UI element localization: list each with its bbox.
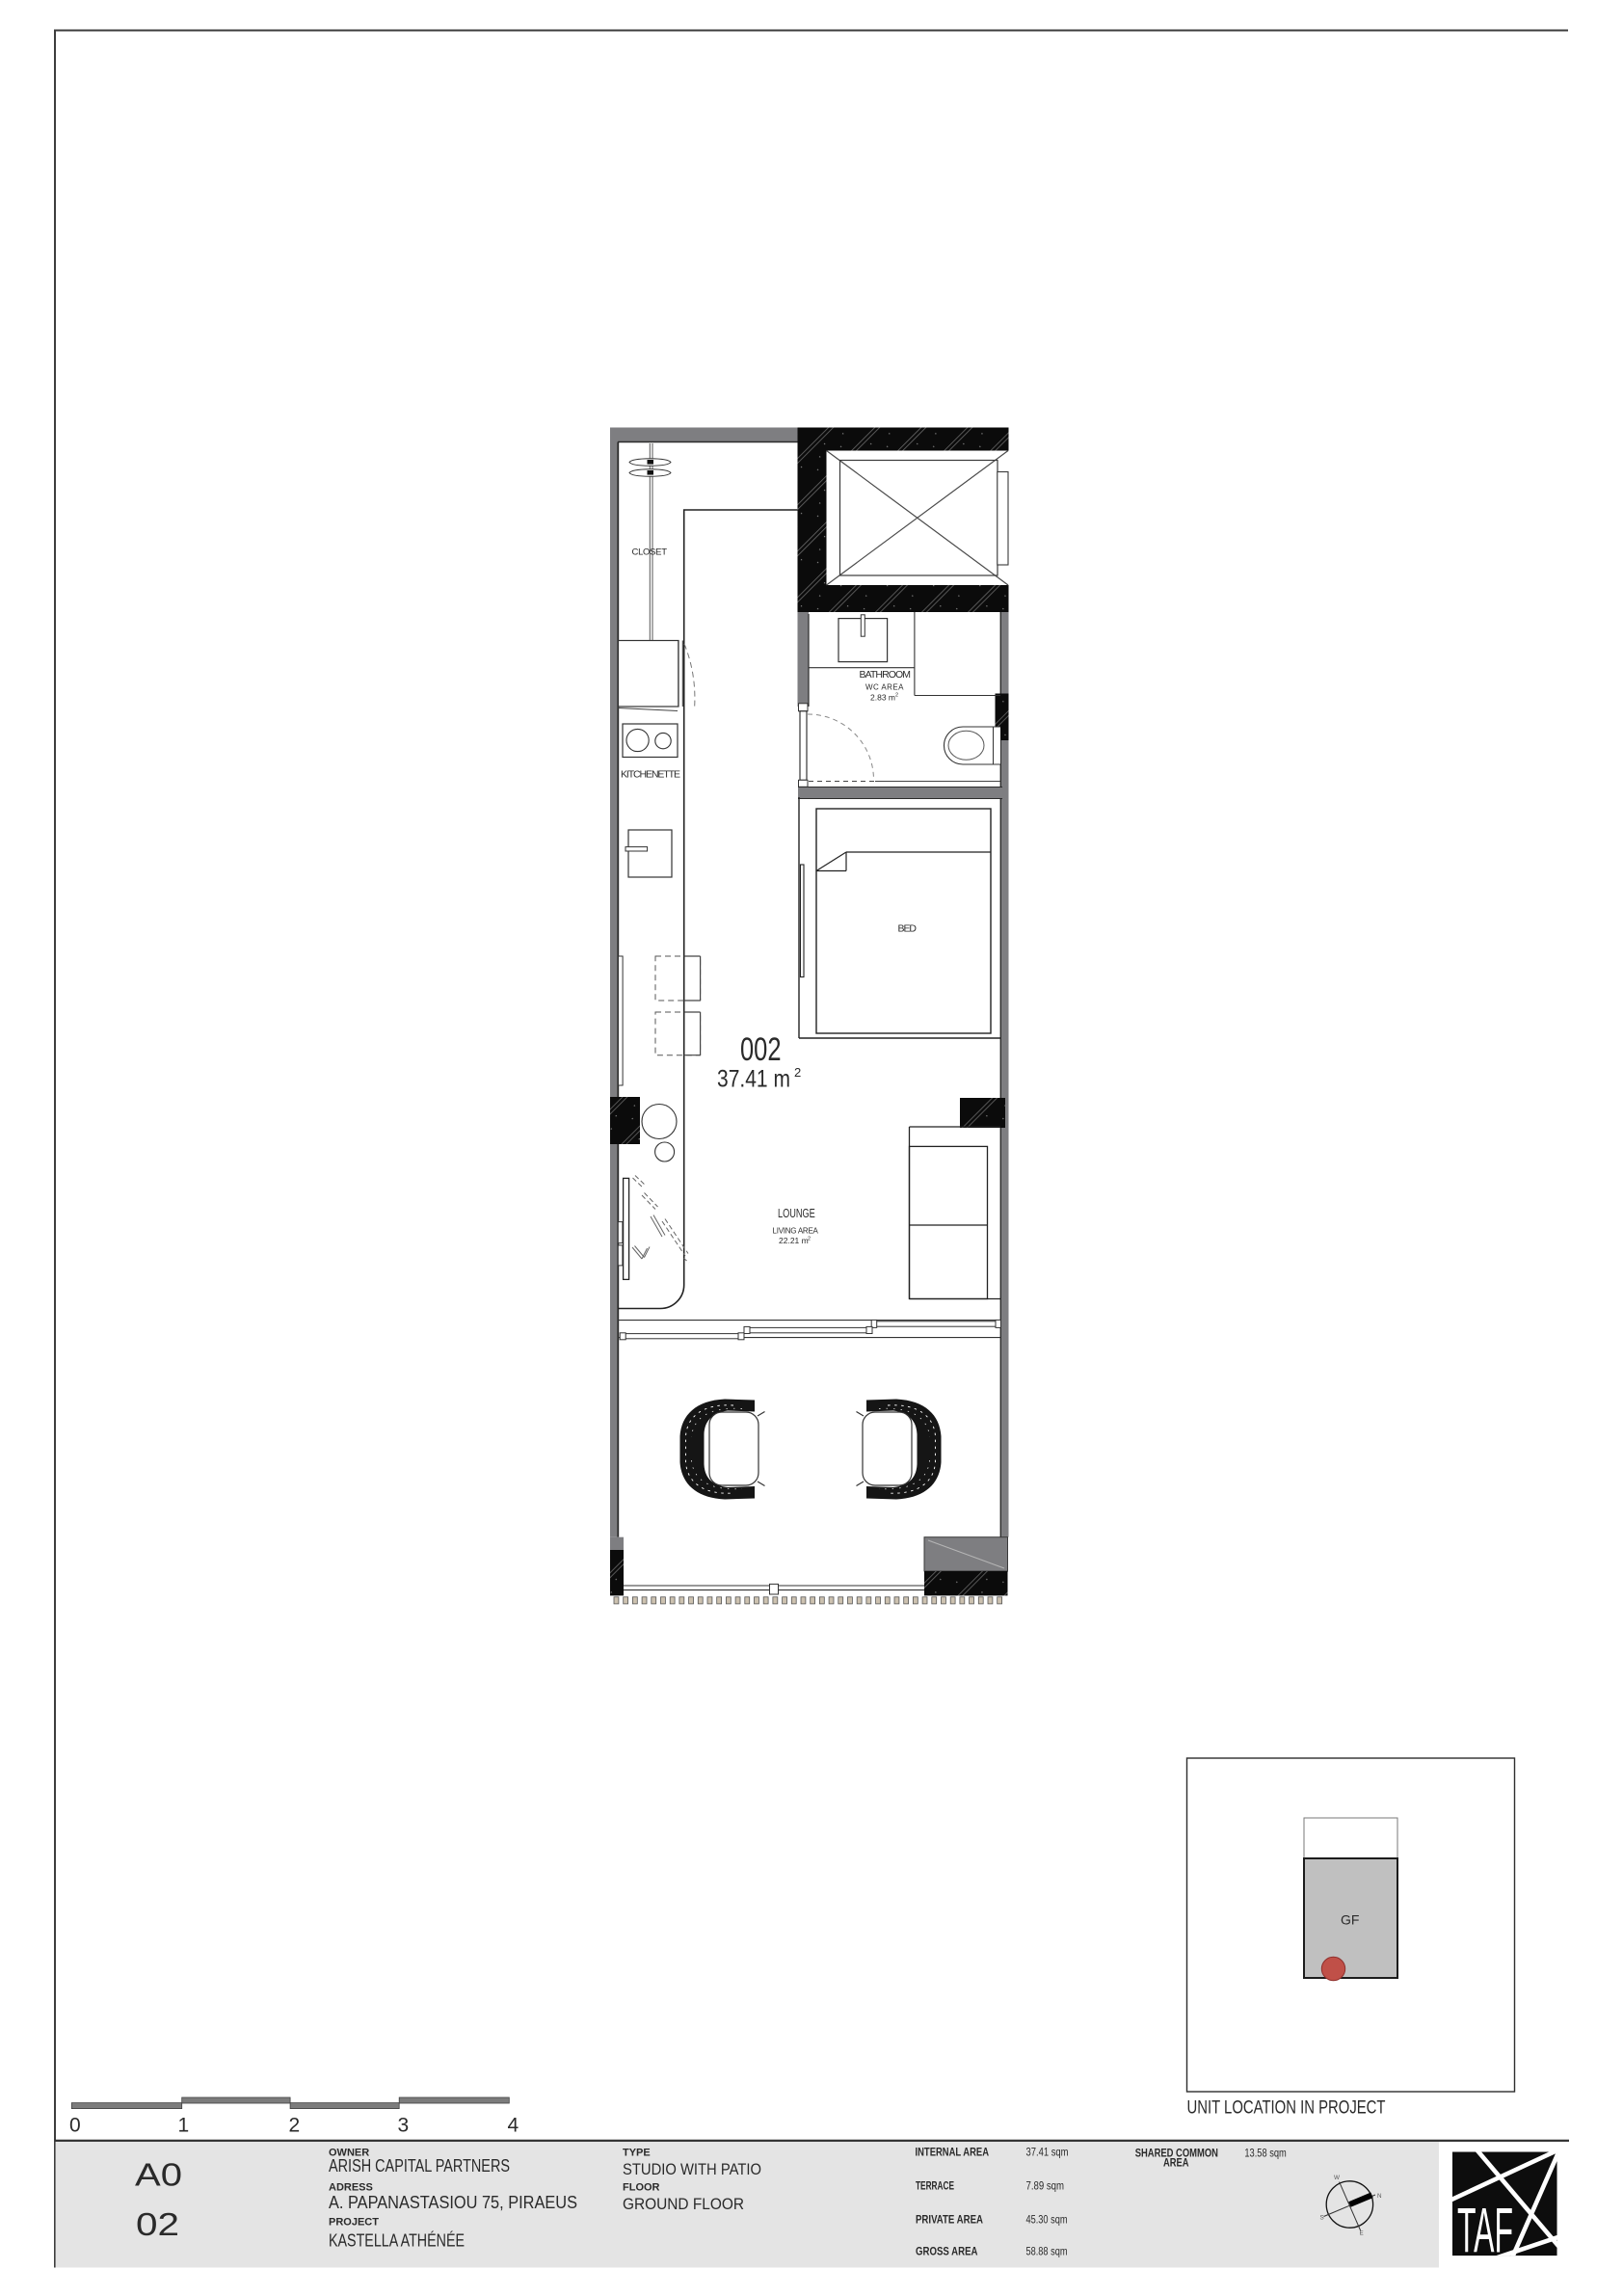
svg-text:1: 1 [178, 2115, 190, 2137]
svg-text:ARISH CAPITAL PARTNERS: ARISH CAPITAL PARTNERS [329, 2156, 510, 2176]
svg-text:2: 2 [808, 1237, 811, 1242]
svg-text:GROSS AREA: GROSS AREA [916, 2247, 978, 2258]
svg-text:N: N [1377, 2193, 1382, 2200]
svg-text:002: 002 [740, 1031, 782, 1068]
svg-text:GF: GF [1341, 1912, 1359, 1928]
svg-text:S: S [1320, 2215, 1324, 2222]
svg-text:TAF: TAF [1457, 2195, 1513, 2266]
svg-text:GROUND FLOOR: GROUND FLOOR [623, 2195, 744, 2213]
svg-text:BED: BED [898, 923, 918, 935]
svg-text:2: 2 [794, 1065, 801, 1080]
svg-text:22.21 m: 22.21 m [779, 1236, 809, 1245]
svg-text:LOUNGE: LOUNGE [778, 1207, 815, 1220]
svg-text:LIVING AREA: LIVING AREA [773, 1226, 819, 1235]
svg-text:0: 0 [69, 2115, 81, 2137]
svg-text:PROJECT: PROJECT [329, 2217, 379, 2229]
svg-text:CLOSET: CLOSET [632, 547, 668, 558]
svg-text:BATHROOM: BATHROOM [860, 669, 912, 681]
svg-text:2: 2 [895, 693, 898, 699]
svg-text:58.88 sqm: 58.88 sqm [1026, 2247, 1068, 2258]
svg-text:KASTELLA ATHÉNÉE: KASTELLA ATHÉNÉE [329, 2231, 465, 2251]
svg-text:3: 3 [398, 2115, 410, 2137]
svg-text:UNIT LOCATION IN PROJECT: UNIT LOCATION IN PROJECT [1187, 2098, 1386, 2119]
svg-text:E: E [1360, 2230, 1364, 2237]
svg-text:KITCHENETTE: KITCHENETTE [621, 769, 680, 781]
svg-text:WC AREA: WC AREA [865, 683, 904, 692]
svg-text:FLOOR: FLOOR [623, 2182, 660, 2194]
svg-text:45.30 sqm: 45.30 sqm [1026, 2215, 1068, 2227]
svg-text:ADRESS: ADRESS [329, 2182, 373, 2194]
svg-text:AREA: AREA [1163, 2157, 1189, 2169]
svg-text:INTERNAL AREA: INTERNAL AREA [916, 2148, 990, 2159]
svg-text:STUDIO WITH PATIO: STUDIO WITH PATIO [623, 2160, 761, 2178]
svg-text:A0: A0 [135, 2157, 182, 2193]
svg-text:37.41 sqm: 37.41 sqm [1026, 2148, 1069, 2159]
svg-text:W: W [1334, 2175, 1340, 2181]
svg-text:4: 4 [508, 2115, 519, 2137]
svg-text:2: 2 [289, 2115, 301, 2137]
svg-text:02: 02 [136, 2206, 179, 2242]
svg-text:PRIVATE AREA: PRIVATE AREA [916, 2215, 983, 2227]
svg-text:TYPE: TYPE [623, 2148, 651, 2159]
svg-text:2.83 m: 2.83 m [870, 693, 895, 703]
svg-text:A. PAPANASTASIOU 75, PIRAEUS: A. PAPANASTASIOU 75, PIRAEUS [329, 2193, 577, 2212]
svg-text:TERRACE: TERRACE [916, 2181, 954, 2193]
svg-text:37.41 m: 37.41 m [717, 1066, 790, 1093]
svg-text:7.89 sqm: 7.89 sqm [1026, 2181, 1065, 2193]
svg-text:13.58 sqm: 13.58 sqm [1244, 2148, 1286, 2159]
